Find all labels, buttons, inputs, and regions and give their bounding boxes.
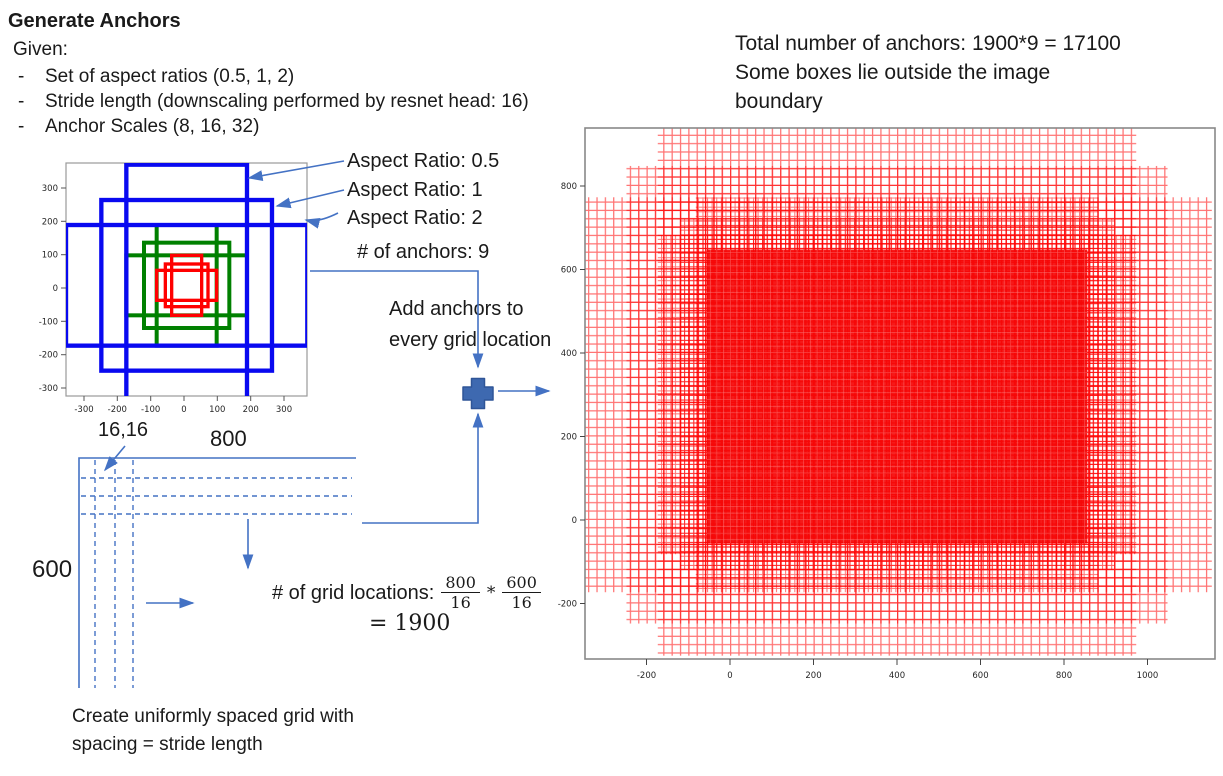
num-anchors-label: # of anchors: 9	[357, 240, 489, 264]
plus-icon	[463, 379, 493, 409]
total-anchors-line2: Some boxes lie outside the image	[735, 58, 1205, 87]
svg-text:0: 0	[181, 405, 186, 415]
grid-height-label: 600	[32, 556, 72, 584]
anchor-grid-layer	[582, 122, 1212, 656]
svg-text:800: 800	[1056, 671, 1072, 681]
bullet-dash: -	[18, 116, 45, 138]
total-anchors-caption: Total number of anchors: 1900*9 = 17100 …	[735, 29, 1205, 116]
y-tick-marks	[61, 188, 66, 388]
envelope-core-speckle	[707, 249, 1088, 543]
multiply-operator: *	[487, 583, 496, 603]
x-tick-labels: -200 0 200 400 600 800 1000	[637, 671, 1158, 681]
svg-text:-200: -200	[39, 351, 58, 361]
bullet-text: Set of aspect ratios (0.5, 1, 2)	[45, 66, 294, 88]
svg-text:-100: -100	[141, 405, 160, 415]
svg-text:-300: -300	[39, 384, 58, 394]
svg-text:-200: -200	[108, 405, 127, 415]
svg-text:200: 200	[42, 217, 58, 227]
add-anchors-line2: every grid location	[389, 328, 551, 352]
bullet-dash: -	[18, 66, 45, 88]
svg-text:300: 300	[276, 405, 292, 415]
x-tick-labels: -300 -200 -100 0 100 200 300	[74, 405, 292, 415]
page-title: Generate Anchors	[8, 10, 181, 33]
svg-text:-100: -100	[39, 317, 58, 327]
svg-text:400: 400	[889, 671, 905, 681]
x-tick-marks	[84, 396, 284, 401]
svg-text:0: 0	[572, 516, 577, 526]
bottom-caption-line2: spacing = stride length	[72, 733, 263, 757]
svg-text:200: 200	[243, 405, 259, 415]
slide-canvas: Generate Anchors Given: - Set of aspect …	[0, 0, 1223, 776]
grid-origin-label: 16,16	[98, 418, 148, 442]
grid-locations-label: # of grid locations:	[272, 581, 434, 605]
aspect-ratio-05-label: Aspect Ratio: 0.5	[347, 149, 499, 173]
svg-text:200: 200	[805, 671, 821, 681]
grid-width-label: 800	[210, 426, 247, 452]
fraction-800-16: 800 16	[441, 574, 480, 611]
all-anchors-plot: -200 0 200 400 600 800 1000 800 600 400 …	[540, 120, 1223, 695]
bullet-scales: - Anchor Scales (8, 16, 32)	[18, 116, 259, 138]
svg-text:800: 800	[561, 182, 577, 192]
bullet-text: Anchor Scales (8, 16, 32)	[45, 116, 259, 138]
grid-locations-result: = 1900	[369, 611, 450, 636]
add-anchors-line1: Add anchors to	[389, 297, 524, 321]
svg-text:600: 600	[561, 266, 577, 276]
aspect-ratio-1-label: Aspect Ratio: 1	[347, 178, 483, 202]
y-tick-labels: 300 200 100 0 -100 -200 -300	[39, 184, 58, 394]
svg-text:200: 200	[561, 433, 577, 443]
svg-text:0: 0	[727, 671, 732, 681]
bullet-text: Stride length (downscaling performed by …	[45, 91, 529, 113]
svg-text:600: 600	[972, 671, 988, 681]
image-corner-lines	[79, 458, 356, 688]
bullet-stride: - Stride length (downscaling performed b…	[18, 91, 529, 113]
given-label: Given:	[13, 38, 68, 62]
x-tick-marks	[647, 659, 1148, 665]
grid-to-plus-connector	[362, 414, 478, 523]
aspect-ratio-2-label: Aspect Ratio: 2	[347, 206, 483, 230]
y-tick-labels: 800 600 400 200 0 -200	[558, 182, 577, 610]
svg-text:-300: -300	[74, 405, 93, 415]
grid-origin-arrow	[105, 446, 125, 470]
svg-text:-200: -200	[637, 671, 656, 681]
svg-text:1000: 1000	[1137, 671, 1159, 681]
fraction-600-16: 600 16	[502, 574, 541, 611]
svg-text:0: 0	[53, 284, 58, 294]
bullet-dash: -	[18, 91, 45, 113]
bottom-caption-line1: Create uniformly spaced grid with	[72, 705, 354, 729]
total-anchors-line3: boundary	[735, 87, 1205, 116]
bullet-aspect-ratios: - Set of aspect ratios (0.5, 1, 2)	[18, 66, 294, 88]
svg-text:-200: -200	[558, 600, 577, 610]
total-anchors-line1: Total number of anchors: 1900*9 = 17100	[735, 29, 1205, 58]
anchor-boxes-plot: -300 -200 -100 0 100 200 300 300 200 100…	[28, 148, 328, 420]
svg-text:100: 100	[209, 405, 225, 415]
svg-text:100: 100	[42, 251, 58, 261]
grid-locations-formula: # of grid locations: 800 16 * 600 16	[272, 574, 541, 611]
svg-text:300: 300	[42, 184, 58, 194]
svg-text:400: 400	[561, 349, 577, 359]
